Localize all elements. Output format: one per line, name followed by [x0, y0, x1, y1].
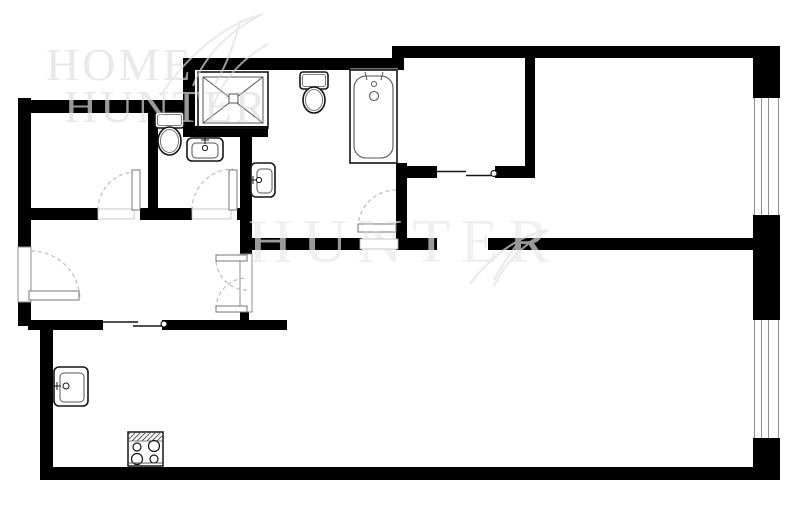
- wall: [525, 57, 535, 178]
- door-swing-arc: [98, 172, 136, 210]
- wall: [28, 320, 103, 330]
- wall: [392, 46, 404, 70]
- floor-plan-svg: HOMEHUNTERHUNTER HOMEHUNTERHUNTER: [0, 0, 800, 531]
- door-threshold: [192, 209, 231, 219]
- door-knob: [161, 321, 167, 327]
- double-door-top: [216, 255, 247, 261]
- wall: [162, 320, 287, 330]
- sink-faucet: [256, 177, 261, 182]
- wall: [183, 58, 396, 70]
- sink-faucet: [202, 145, 207, 150]
- wall: [392, 46, 780, 58]
- wall: [753, 215, 780, 320]
- wall: [31, 208, 98, 220]
- wall: [396, 166, 437, 178]
- window: [753, 98, 780, 215]
- double-door-bottom: [216, 306, 247, 312]
- door-knob: [491, 171, 497, 177]
- entry-door: [29, 291, 79, 300]
- wall: [140, 208, 192, 220]
- door-swing-arc: [192, 169, 233, 210]
- door-threshold: [98, 209, 134, 219]
- feather-icon: [193, 14, 263, 86]
- bathtub: [350, 70, 397, 163]
- wc-door: [229, 170, 237, 210]
- wall: [18, 302, 31, 326]
- wall: [40, 467, 780, 480]
- window: [753, 320, 780, 438]
- wall: [40, 322, 53, 472]
- wall: [240, 311, 249, 326]
- feather-icon: [193, 14, 263, 86]
- bedroom1-door: [132, 170, 140, 210]
- wall: [753, 46, 780, 98]
- toilet-bowl: [303, 87, 325, 113]
- wall: [18, 98, 31, 247]
- watermark-center-text: HUNTER: [248, 208, 559, 276]
- floorplan-canvas: HOMEHUNTERHUNTER HOMEHUNTERHUNTER: [0, 0, 800, 531]
- sink-faucet: [63, 383, 69, 389]
